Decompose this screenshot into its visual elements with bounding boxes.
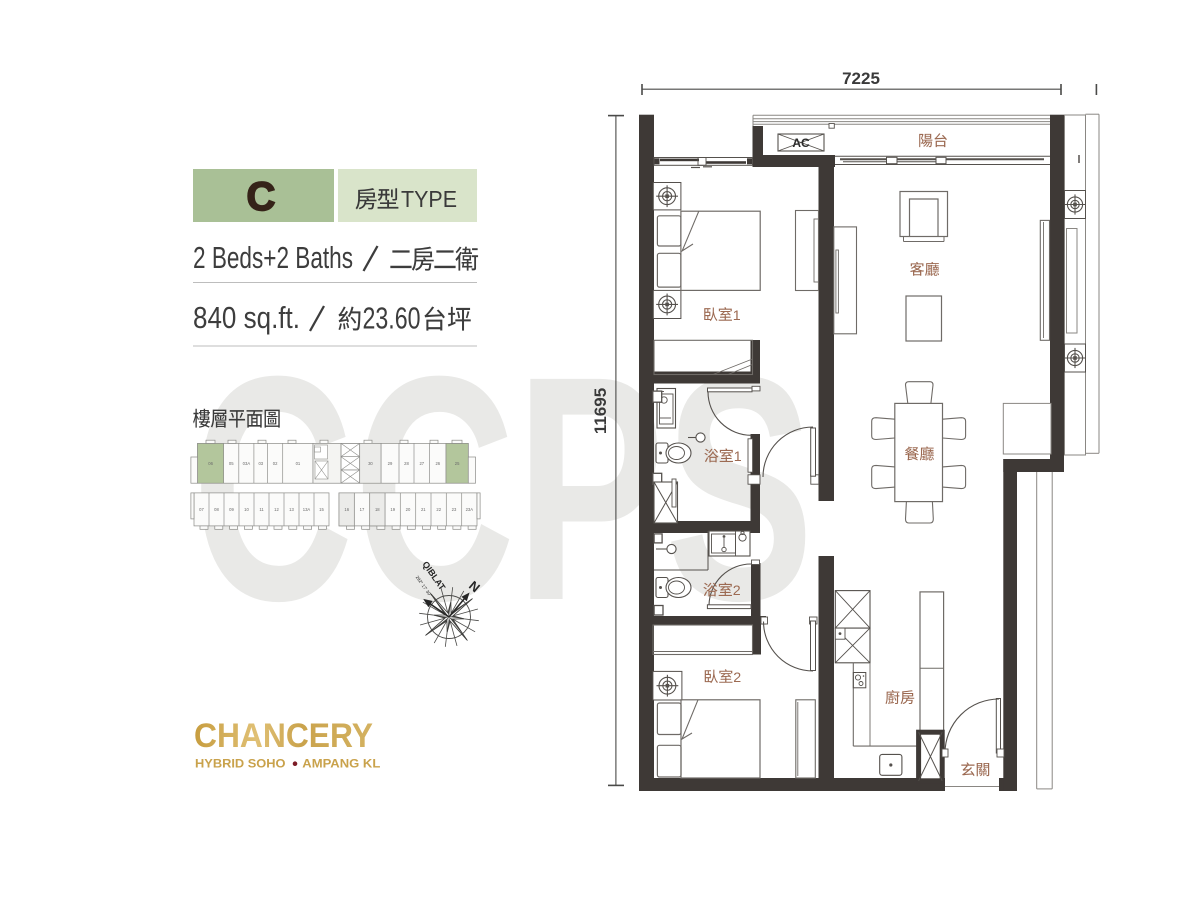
svg-text:7225: 7225 bbox=[842, 69, 880, 88]
svg-text:1: 1 bbox=[733, 308, 741, 324]
svg-text:1: 1 bbox=[734, 449, 742, 465]
svg-text:2: 2 bbox=[733, 583, 741, 599]
svg-text:11695: 11695 bbox=[591, 388, 610, 434]
svg-text:AC: AC bbox=[792, 136, 810, 150]
svg-text:2: 2 bbox=[733, 670, 741, 686]
